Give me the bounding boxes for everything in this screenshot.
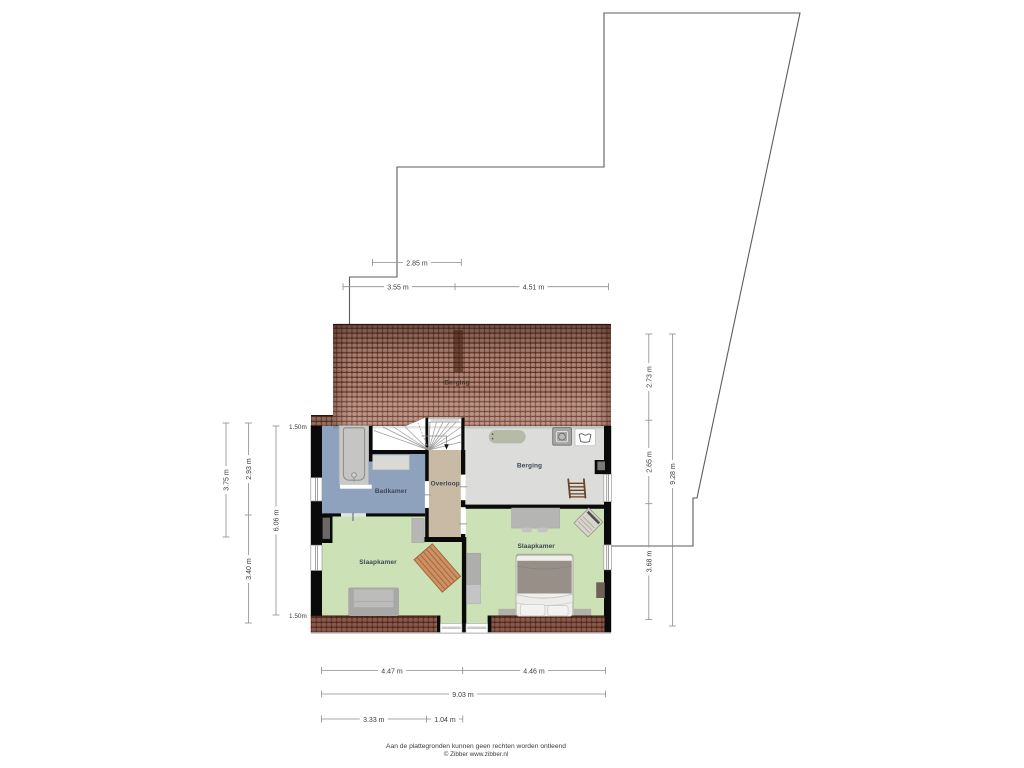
svg-text:1.04 m: 1.04 m: [434, 717, 456, 724]
svg-text:3.40 m: 3.40 m: [246, 558, 253, 580]
svg-text:2.65 m: 2.65 m: [646, 451, 653, 473]
svg-text:3.75 m: 3.75 m: [224, 469, 231, 491]
svg-text:4.51 m: 4.51 m: [523, 285, 545, 292]
svg-text:6.06 m: 6.06 m: [274, 510, 281, 532]
svg-text:1.50m: 1.50m: [289, 613, 307, 620]
svg-text:Slaapkamer: Slaapkamer: [517, 543, 555, 550]
svg-text:9.28 m: 9.28 m: [670, 463, 677, 485]
svg-text:4.46 m: 4.46 m: [523, 668, 545, 675]
svg-text:4.47 m: 4.47 m: [381, 668, 403, 675]
svg-text:Berging: Berging: [444, 380, 469, 387]
svg-text:© Zibber www.zibber.nl: © Zibber www.zibber.nl: [444, 750, 508, 758]
svg-text:3.68 m: 3.68 m: [646, 551, 653, 573]
svg-text:9.03 m: 9.03 m: [452, 692, 474, 699]
svg-text:3.55 m: 3.55 m: [387, 285, 409, 292]
svg-text:2.73 m: 2.73 m: [646, 366, 653, 388]
svg-text:Slaapkamer: Slaapkamer: [359, 559, 397, 566]
svg-text:Overloop: Overloop: [431, 480, 460, 487]
svg-text:2.93 m: 2.93 m: [246, 458, 253, 480]
svg-text:Berging: Berging: [517, 463, 542, 470]
svg-text:3.33 m: 3.33 m: [363, 717, 385, 724]
svg-text:2.85 m: 2.85 m: [406, 260, 428, 267]
svg-text:1.50m: 1.50m: [289, 424, 307, 431]
svg-text:Aan de plattegronden kunnen ge: Aan de plattegronden kunnen geen rechten…: [386, 743, 566, 750]
svg-text:Badkamer: Badkamer: [375, 488, 408, 495]
